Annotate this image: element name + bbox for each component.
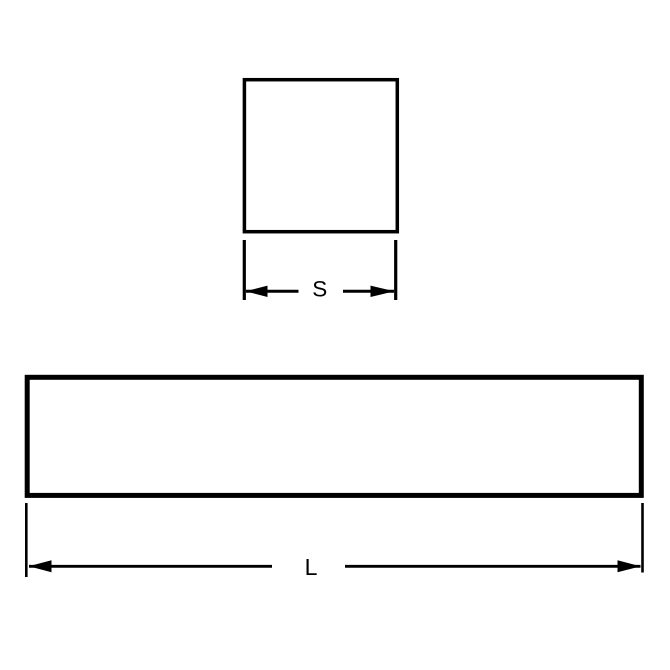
- svg-text:L: L: [305, 554, 318, 580]
- svg-text:S: S: [312, 276, 327, 301]
